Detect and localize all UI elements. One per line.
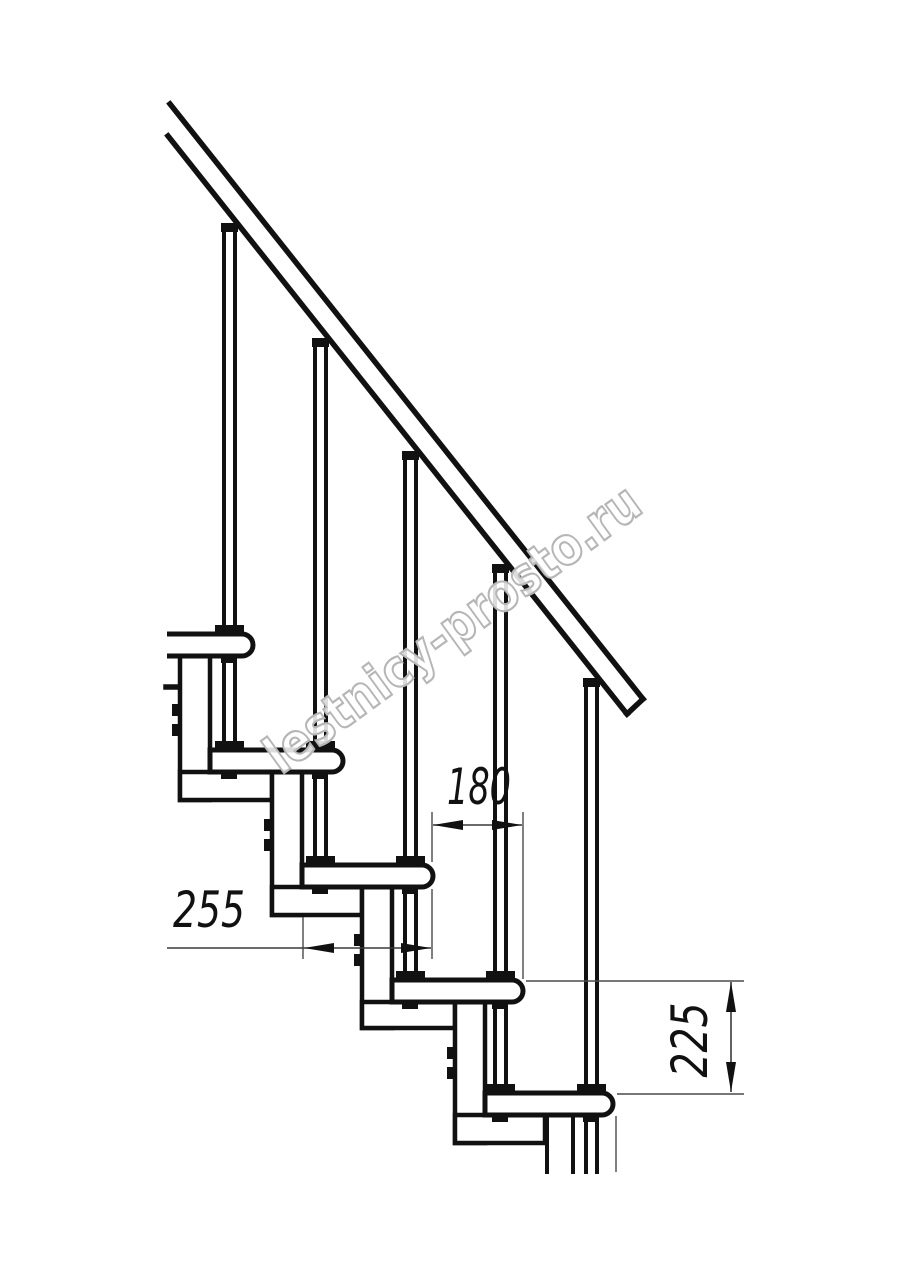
dimension-run: 180 xyxy=(432,758,523,979)
tread-1 xyxy=(167,634,253,656)
tread-5 xyxy=(485,1093,613,1115)
dimension-depth-label: 255 xyxy=(173,881,245,939)
baluster-1 xyxy=(224,230,235,780)
stringer-column-5 xyxy=(547,1115,573,1174)
drawing-svg: 180 255 225 lestnicy-prosto.ru xyxy=(0,0,914,1280)
dimension-rise-label: 225 xyxy=(661,1003,719,1078)
baluster-2 xyxy=(315,345,326,893)
balusters xyxy=(224,230,597,1174)
baluster-4 xyxy=(495,571,506,1124)
dimension-rise: 225 xyxy=(526,981,744,1172)
dimension-run-label: 180 xyxy=(447,758,511,816)
handrail-end-cap xyxy=(627,699,643,714)
baluster-3 xyxy=(405,458,416,1010)
tread-3 xyxy=(302,865,433,887)
staircase-technical-drawing: 180 255 225 lestnicy-prosto.ru xyxy=(0,0,914,1280)
tread-4 xyxy=(392,980,523,1002)
